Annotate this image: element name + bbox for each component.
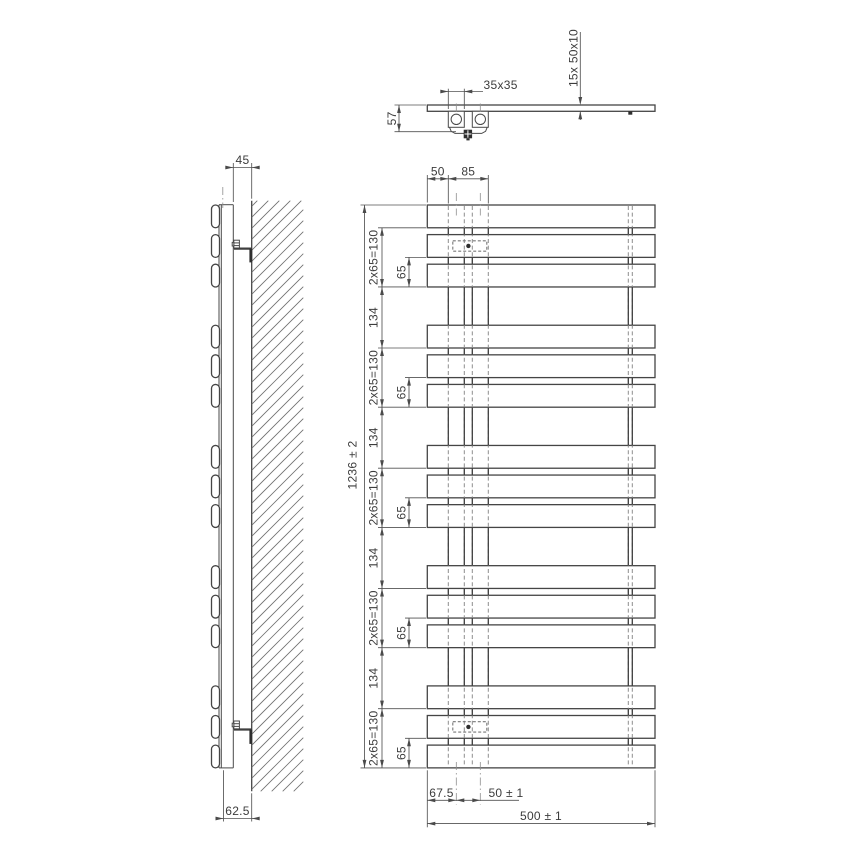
dim-label-bar-spacing: 65 <box>395 506 409 520</box>
wall-hatch-line <box>252 507 304 559</box>
wall-anchor-plate <box>249 249 252 263</box>
dim-label-bar-spacing: 65 <box>395 265 409 279</box>
side-bar-end <box>212 686 220 709</box>
dim-label-group-gap: 134 <box>367 427 381 448</box>
wall-hatch-line <box>252 474 304 526</box>
dim-label-group-height: 2x65=130 <box>367 350 381 405</box>
dim-label-overall-width: 500 ± 1 <box>520 809 562 823</box>
dim-label-group-gap: 134 <box>367 307 381 328</box>
front-bar <box>427 235 655 258</box>
dim-label-bar-spacing: 65 <box>395 746 409 760</box>
dim-arrow <box>472 798 480 802</box>
dim-arrow <box>380 228 384 236</box>
wall-hatch-line <box>252 430 304 482</box>
side-bar-end <box>212 566 220 589</box>
wall-hatch-line <box>252 232 304 284</box>
dim-arrow <box>407 640 411 648</box>
front-bar <box>427 264 655 287</box>
front-bar <box>427 595 655 618</box>
wall-hatch-line <box>252 331 304 383</box>
wall-hatch-line <box>261 749 304 792</box>
wall-hatch-line <box>252 573 304 625</box>
dim-arrow <box>407 618 411 626</box>
wall-hatch-line <box>252 738 304 790</box>
wall-hatch-line <box>252 287 304 339</box>
front-bar <box>427 625 655 648</box>
wall-hatch-line <box>252 201 258 207</box>
dim-arrow <box>380 279 384 287</box>
wall-hatch-line <box>252 683 304 735</box>
dim-arrow <box>380 709 384 717</box>
dim-label-overall-height: 1236 ± 2 <box>346 440 360 489</box>
side-bar-end <box>212 355 220 378</box>
dim-arrow <box>380 527 384 535</box>
dim-arrow <box>380 340 384 348</box>
front-bar <box>427 355 655 378</box>
dim-arrow <box>407 498 411 506</box>
wall-hatch-line <box>252 201 291 240</box>
dim-arrow <box>407 519 411 527</box>
wall-hatch-line <box>252 540 304 592</box>
wall-hatch-line <box>252 694 304 746</box>
dim-label-axis-spacing: 50 ± 1 <box>488 786 523 800</box>
side-bar-end <box>212 445 220 468</box>
wall-hatch-line <box>252 243 304 295</box>
dim-arrow <box>380 519 384 527</box>
dim-arrow <box>407 760 411 768</box>
wall-hatch-line <box>252 221 304 273</box>
side-bar-end <box>212 475 220 498</box>
dim-arrow <box>380 580 384 588</box>
bracket-fixing-dot <box>466 725 470 729</box>
dim-arrow <box>380 407 384 415</box>
dim-arrow <box>380 648 384 656</box>
wall-hatch-line <box>252 386 304 438</box>
dim-arrow <box>252 166 260 170</box>
dim-arrow <box>456 798 464 802</box>
side-bar-end <box>212 716 220 739</box>
wall-hatch-line <box>252 716 304 768</box>
wall-hatch-line <box>252 562 304 614</box>
dim-arrow <box>578 111 582 119</box>
front-bar <box>427 745 655 768</box>
dim-arrow <box>380 399 384 407</box>
dim-arrow <box>225 166 233 170</box>
side-bar-end <box>212 205 220 228</box>
bracket-screw-side <box>234 721 240 729</box>
dim-label-group-height: 2x65=130 <box>367 230 381 285</box>
bracket-screw-side <box>234 240 240 248</box>
bracket-screw-nub <box>232 723 234 727</box>
wall-hatch-line <box>283 771 304 792</box>
side-bar-end <box>212 325 220 348</box>
dim-label-wall-clearance: 45 <box>236 153 250 167</box>
wall-hatch-line <box>252 727 304 779</box>
dim-label-group-height: 2x65=130 <box>367 470 381 525</box>
wall-hatch-line <box>252 672 304 724</box>
dim-arrow <box>407 257 411 265</box>
dim-arrow <box>407 399 411 407</box>
front-bar <box>427 205 655 228</box>
front-bar <box>427 686 655 709</box>
dim-arrow <box>380 588 384 596</box>
wall-hatch-line <box>252 342 304 394</box>
wall-hatch-line <box>252 518 304 570</box>
front-bar <box>427 445 655 468</box>
wall-hatch-line <box>294 782 304 792</box>
technical-drawing: 4562.535x355715x 50x1050851236 ± 22x65=1… <box>0 0 868 868</box>
wall-hatch-line <box>252 584 304 636</box>
side-bar-end <box>212 264 220 287</box>
front-bar <box>427 325 655 348</box>
right-riser-section <box>628 111 632 114</box>
dim-label-group-height: 2x65=130 <box>367 590 381 645</box>
wall-hatch-line <box>252 408 304 460</box>
wall-hatch-line <box>252 419 304 471</box>
dim-arrow <box>407 279 411 287</box>
dim-arrow <box>464 90 472 94</box>
screw-tail <box>466 138 469 140</box>
wall-hatch-line <box>252 485 304 537</box>
side-bar-end <box>212 595 220 618</box>
front-bar <box>427 384 655 407</box>
dim-label-group-gap: 134 <box>367 547 381 568</box>
wall-hatch-line <box>252 452 304 504</box>
side-bar-end <box>212 505 220 528</box>
bracket-fixing-dot <box>466 244 470 248</box>
dim-label-bar-spacing: 65 <box>395 385 409 399</box>
dim-label-bar-spacing: 65 <box>395 626 409 640</box>
side-bar-end <box>212 384 220 407</box>
dim-label-bracket-depth: 57 <box>385 111 399 125</box>
dim-arrow <box>440 90 448 94</box>
dim-label-edge-offset: 67.5 <box>429 786 454 800</box>
wall-hatch-line <box>252 201 269 218</box>
dim-label-group-height: 2x65=130 <box>367 711 381 766</box>
front-bar <box>427 505 655 528</box>
front-bar <box>427 566 655 589</box>
dim-arrow <box>252 817 260 821</box>
wall-hatch-line <box>252 529 304 581</box>
dim-label-tube-section: 35x35 <box>484 78 518 92</box>
dim-arrow <box>380 287 384 295</box>
wall-hatch-line <box>252 210 304 262</box>
dim-arrow <box>380 701 384 709</box>
dim-arrow <box>380 760 384 768</box>
wall-hatch-line <box>252 617 304 669</box>
wall-hatch-line <box>252 298 304 350</box>
dim-arrow <box>427 822 435 826</box>
wall-hatch-line <box>252 201 302 251</box>
wall-hatch-line <box>252 705 304 757</box>
dim-arrow <box>578 97 582 105</box>
wall-hatch-line <box>252 628 304 680</box>
dim-arrow <box>363 205 367 213</box>
wall-hatch-line <box>252 201 280 229</box>
side-bar-end <box>212 745 220 768</box>
wall-hatch-line <box>252 661 304 713</box>
dim-arrow <box>380 468 384 476</box>
wall-anchor-plate <box>249 730 252 744</box>
wall-hatch-line <box>252 309 304 361</box>
dim-arrow <box>380 640 384 648</box>
wall-hatch-line <box>252 364 304 416</box>
drawing-canvas: 4562.535x355715x 50x1050851236 ± 22x65=1… <box>0 0 868 868</box>
wall-hatch-line <box>252 276 304 328</box>
dim-arrow <box>380 460 384 468</box>
dim-label-tube-span: 85 <box>461 164 475 178</box>
dim-arrow <box>480 177 488 181</box>
side-bar-end <box>212 625 220 648</box>
wall-hatch-line <box>252 397 304 449</box>
wall-hatch-line <box>252 496 304 548</box>
wall-hatch-line <box>252 265 304 317</box>
top-view-bar <box>427 105 655 111</box>
bracket-screw-nub <box>232 242 234 246</box>
dim-label-bottom-wall-distance: 62.5 <box>225 804 250 818</box>
dim-label-bar-profile: 15x 50x10 <box>567 29 581 87</box>
wall-hatch-line <box>252 254 304 306</box>
wall-hatch-line <box>252 650 304 702</box>
dim-label-edge-to-tube: 50 <box>431 164 445 178</box>
dim-label-group-gap: 134 <box>367 668 381 689</box>
wall-hatch-line <box>252 463 304 515</box>
wall-hatch-line <box>252 595 304 647</box>
wall-hatch-line <box>252 375 304 427</box>
dim-arrow <box>407 738 411 746</box>
side-bar-end <box>212 235 220 258</box>
wall-hatch-line <box>252 320 304 372</box>
wall-hatch-line <box>252 551 304 603</box>
wall-hatch-line <box>252 353 304 405</box>
wall-hatch-line <box>252 441 304 493</box>
dim-arrow <box>448 177 456 181</box>
front-bar <box>427 475 655 498</box>
wall-hatch-line <box>252 639 304 691</box>
dim-arrow <box>216 817 224 821</box>
dim-arrow <box>647 822 655 826</box>
wall-hatch-line <box>252 606 304 658</box>
dim-arrow <box>380 348 384 356</box>
front-bar <box>427 716 655 739</box>
dim-arrow <box>407 378 411 386</box>
